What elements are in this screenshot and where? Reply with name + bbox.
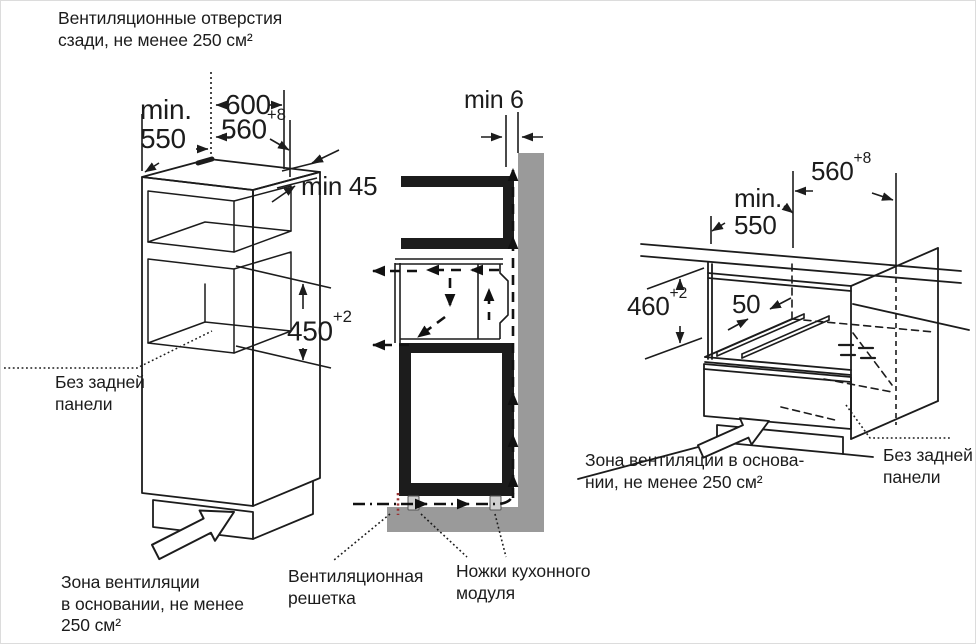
dim-left-rear-gap: min 45 bbox=[301, 171, 377, 202]
dim-right-rail-spacing: 50 bbox=[732, 289, 760, 320]
installation-diagram: Вентиляционные отверстия сзади, не менее… bbox=[0, 0, 976, 644]
tall-cabinet-line-art bbox=[142, 159, 320, 567]
note-vent-zone-right: Зона вентиляции в основа- нии, не менее … bbox=[585, 450, 804, 493]
base-cabinet-dimension-lines bbox=[645, 171, 951, 438]
dim-left-depth: min. 550 bbox=[140, 95, 192, 153]
dim-left-niche-width: 560+8 bbox=[221, 113, 286, 145]
note-vent-grille: Вентиляционная решетка bbox=[288, 566, 423, 609]
note-vent-zone-left: Зона вентиляции в основании, не менее 25… bbox=[61, 572, 244, 637]
cabinet-section-panels bbox=[399, 176, 514, 496]
base-cabinet-line-art bbox=[578, 244, 969, 479]
dim-middle-front-gap: min 6 bbox=[464, 86, 524, 115]
dim-left-niche-height: 450+2 bbox=[287, 315, 352, 347]
note-no-back-panel-right: Без задней панели bbox=[883, 445, 973, 488]
support-rails bbox=[717, 314, 829, 358]
dim-right-depth: min. 550 bbox=[734, 185, 782, 239]
note-vent-openings-back: Вентиляционные отверстия сзади, не менее… bbox=[58, 8, 282, 51]
dim-right-niche-width: 560+8 bbox=[811, 156, 871, 187]
rear-vent-slot bbox=[198, 159, 212, 163]
worktop-edge bbox=[641, 244, 961, 271]
leader-line-no-back-panel bbox=[4, 331, 212, 368]
cabinet-front-face bbox=[142, 177, 253, 506]
dim-right-niche-height: 460+2 bbox=[627, 291, 687, 322]
vent-zone-arrow bbox=[148, 497, 242, 567]
worktop-edge bbox=[641, 256, 961, 283]
note-no-back-panel-left: Без задней панели bbox=[55, 372, 145, 415]
cabinet-foot bbox=[490, 496, 501, 510]
airflow-arrows bbox=[353, 169, 513, 504]
note-module-feet: Ножки кухонного модуля bbox=[456, 561, 590, 604]
leader-line-no-back-panel bbox=[846, 405, 951, 438]
cabinet-top-face bbox=[142, 159, 320, 190]
